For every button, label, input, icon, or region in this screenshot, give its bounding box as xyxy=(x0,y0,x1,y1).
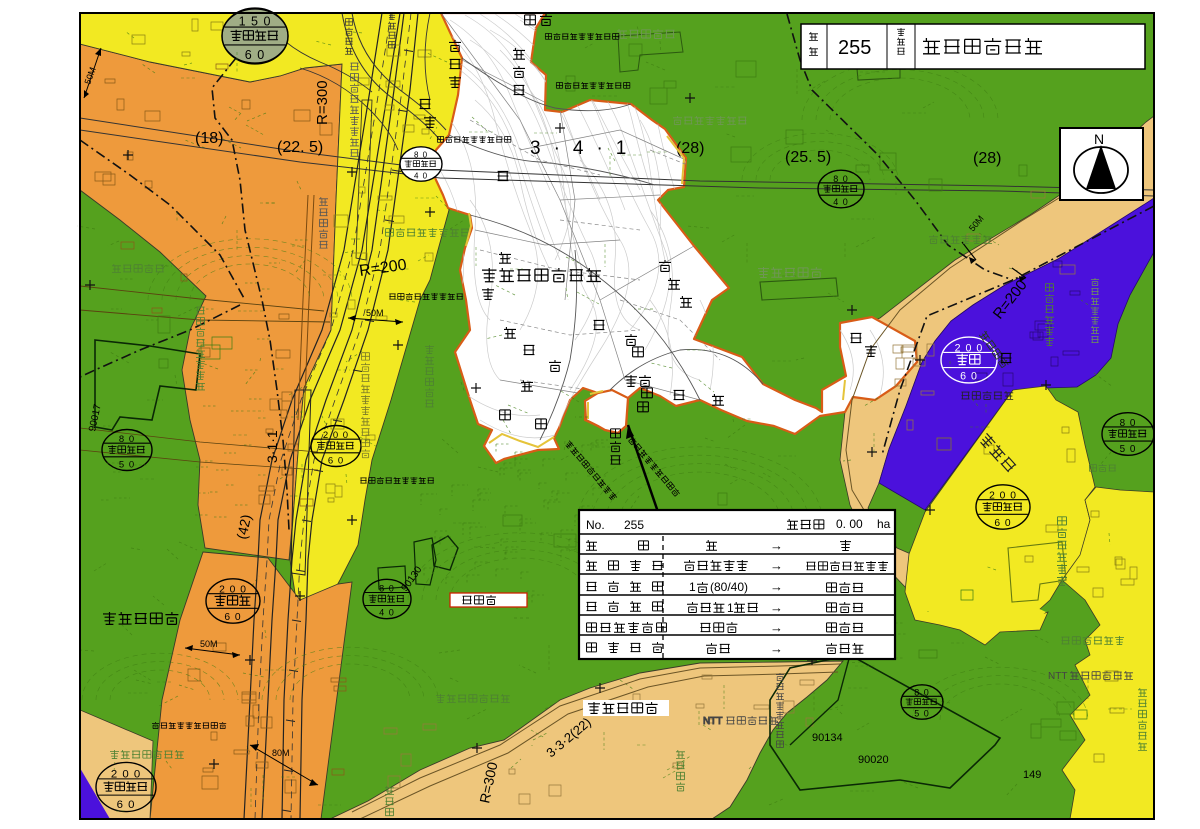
svg-text:4 0: 4 0 xyxy=(379,608,395,618)
svg-text:→: → xyxy=(770,620,783,635)
svg-text:→: → xyxy=(770,538,783,553)
svg-text:1: 1 xyxy=(727,601,734,615)
svg-text:6 0: 6 0 xyxy=(117,799,136,811)
svg-text:5 0: 5 0 xyxy=(914,709,930,719)
svg-text:→: → xyxy=(770,641,783,656)
svg-text:→: → xyxy=(770,600,783,615)
svg-text:80M: 80M xyxy=(272,748,290,758)
svg-text:0. 00: 0. 00 xyxy=(836,517,863,531)
svg-text:6 0: 6 0 xyxy=(960,371,978,383)
svg-text:6 0: 6 0 xyxy=(328,455,344,466)
svg-text:4 0: 4 0 xyxy=(833,197,849,207)
svg-text:50M: 50M xyxy=(366,308,384,318)
svg-text:90020: 90020 xyxy=(858,754,889,766)
svg-text:(28): (28) xyxy=(973,150,1001,167)
svg-text:8 0: 8 0 xyxy=(833,174,849,184)
svg-text:2 0 0: 2 0 0 xyxy=(989,491,1017,502)
svg-text:ha: ha xyxy=(877,517,891,531)
svg-text:6 0: 6 0 xyxy=(245,48,265,62)
svg-text:(25. 5): (25. 5) xyxy=(785,149,831,166)
svg-text:1: 1 xyxy=(689,580,696,594)
svg-text:NTT: NTT xyxy=(703,716,722,727)
svg-text:6 0: 6 0 xyxy=(224,612,241,623)
svg-text:2 0 0: 2 0 0 xyxy=(323,430,349,441)
svg-text:4 0: 4 0 xyxy=(414,172,428,181)
svg-text:2 0 0: 2 0 0 xyxy=(955,342,984,354)
svg-text:255: 255 xyxy=(838,37,871,59)
svg-text:5 0: 5 0 xyxy=(119,459,135,470)
svg-text:→: → xyxy=(770,579,783,594)
svg-text:1 5 0: 1 5 0 xyxy=(239,15,272,29)
svg-text:NTT: NTT xyxy=(1048,671,1067,682)
svg-text:8 0: 8 0 xyxy=(379,584,395,594)
svg-text:(22. 5): (22. 5) xyxy=(277,139,323,156)
svg-text:90134: 90134 xyxy=(812,732,843,744)
svg-text:149: 149 xyxy=(1023,769,1041,781)
svg-text:No.: No. xyxy=(586,518,605,532)
svg-text:2 0 0: 2 0 0 xyxy=(219,585,247,596)
svg-text:(18): (18) xyxy=(195,130,223,147)
svg-text:255: 255 xyxy=(624,518,644,532)
svg-text:R=300: R=300 xyxy=(314,80,331,125)
svg-text:(80/40): (80/40) xyxy=(710,580,748,594)
svg-text:3·4·1: 3·4·1 xyxy=(530,138,639,159)
svg-text:2 0 0: 2 0 0 xyxy=(111,769,141,781)
svg-text:8 0: 8 0 xyxy=(914,687,930,697)
svg-text:50M: 50M xyxy=(200,639,218,649)
svg-text:3·1·1: 3·1·1 xyxy=(264,430,280,463)
svg-text:8 0: 8 0 xyxy=(119,434,135,445)
svg-text:N: N xyxy=(1094,131,1104,147)
svg-text:8 0: 8 0 xyxy=(414,150,428,159)
svg-text:5 0: 5 0 xyxy=(1120,444,1137,455)
svg-text:8 0: 8 0 xyxy=(1120,418,1137,429)
svg-text:→: → xyxy=(770,558,783,573)
svg-text:6 0: 6 0 xyxy=(994,518,1011,529)
